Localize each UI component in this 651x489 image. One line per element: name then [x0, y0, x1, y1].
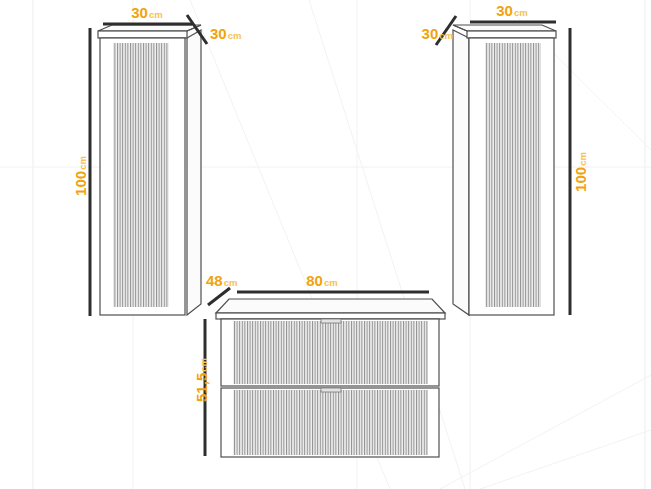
vanity-drawer-top-fluting: [233, 321, 428, 384]
left-cabinet-side-face: [187, 30, 201, 315]
vanity-bottom-drawer-handle: [321, 388, 341, 392]
vanity-depth-label: 48cm: [206, 272, 237, 289]
right-cabinet-top-band: [467, 31, 556, 38]
vanity-unit: [216, 299, 445, 457]
vanity-width-label: 80cm: [306, 272, 337, 289]
vanity-countertop-face: [216, 299, 445, 313]
left-cabinet-height-label: 100cm: [72, 156, 89, 196]
vanity-countertop-edge: [216, 313, 445, 319]
right-tall-cabinet: [453, 25, 556, 315]
left-cabinet-top-band: [98, 31, 187, 38]
left-cabinet-fluted-front: [113, 43, 169, 307]
right-cabinet-top-face: [453, 25, 556, 31]
right-cabinet-fluted-front: [485, 43, 541, 307]
furniture-dimension-diagram: 30cm 30cm 100cm 30cm 30cm 100cm 48cm 80c…: [0, 0, 651, 489]
right-cabinet-width-label: 30cm: [496, 2, 527, 19]
vanity-top-drawer-handle: [321, 319, 341, 323]
vanity-height-label: 51,5cm: [193, 358, 210, 402]
left-cabinet-top-face: [98, 25, 201, 31]
left-cabinet-width-label: 30cm: [131, 4, 162, 21]
left-tall-cabinet: [98, 25, 201, 315]
vanity-drawer-bottom-fluting: [233, 390, 428, 455]
right-cabinet-height-label: 100cm: [572, 152, 589, 192]
left-cabinet-depth-label: 30cm: [210, 25, 241, 42]
right-cabinet-side-face: [453, 30, 469, 315]
